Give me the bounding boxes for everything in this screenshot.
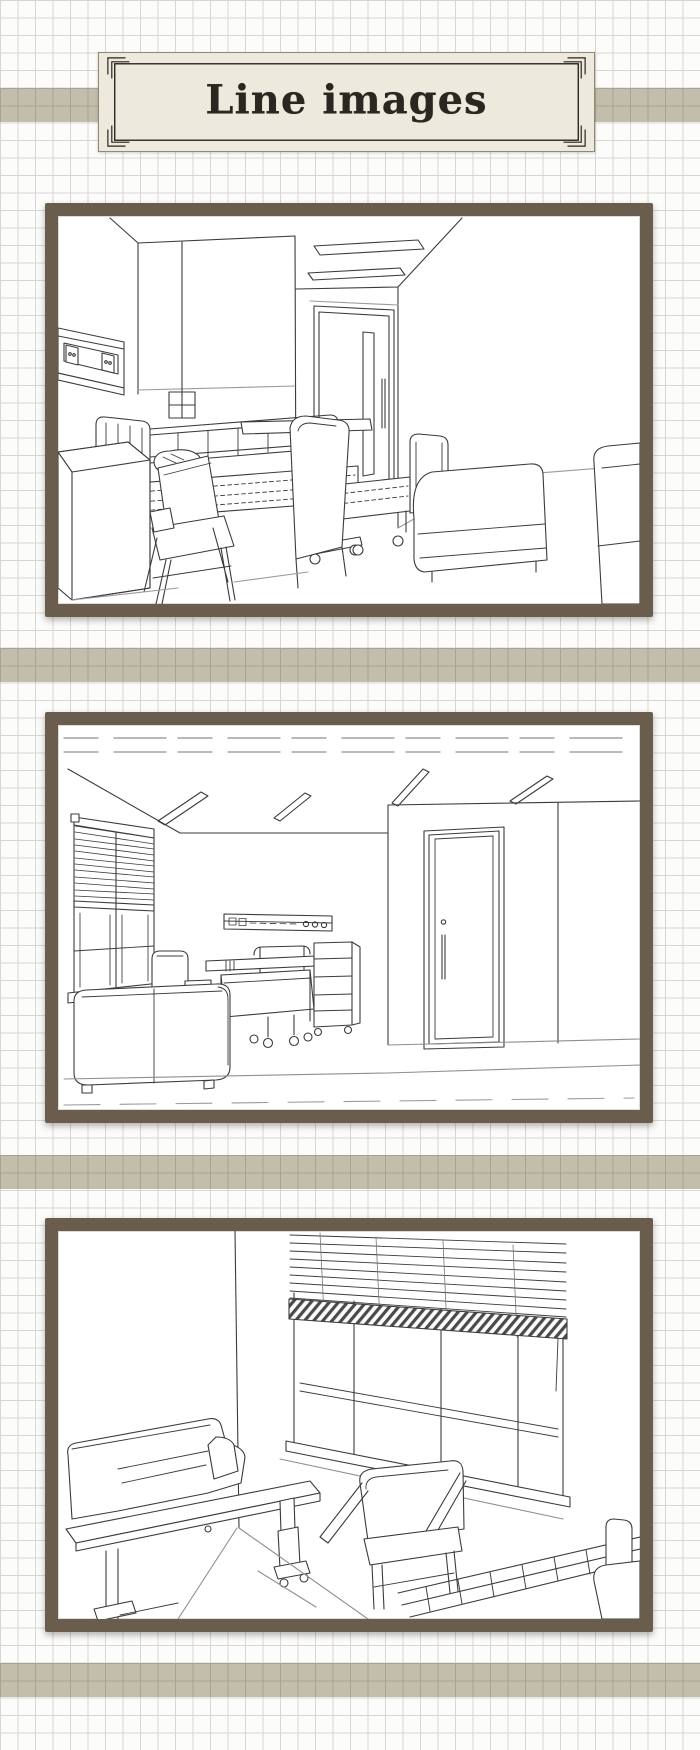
- title-banner: Line images: [98, 52, 595, 152]
- decorative-stripe: [0, 1663, 700, 1697]
- page-title: Line images: [99, 77, 594, 124]
- framed-image-1: [45, 203, 653, 617]
- hospital-room-line-drawing-3: [58, 1231, 640, 1619]
- decorative-stripe: [0, 1155, 700, 1189]
- page-background: Line images: [0, 0, 700, 1750]
- hospital-room-line-drawing-2: [58, 725, 640, 1110]
- decorative-stripe: [0, 648, 700, 682]
- framed-image-3: [45, 1218, 653, 1632]
- hospital-room-line-drawing-1: [58, 216, 640, 604]
- framed-image-2: [45, 712, 653, 1123]
